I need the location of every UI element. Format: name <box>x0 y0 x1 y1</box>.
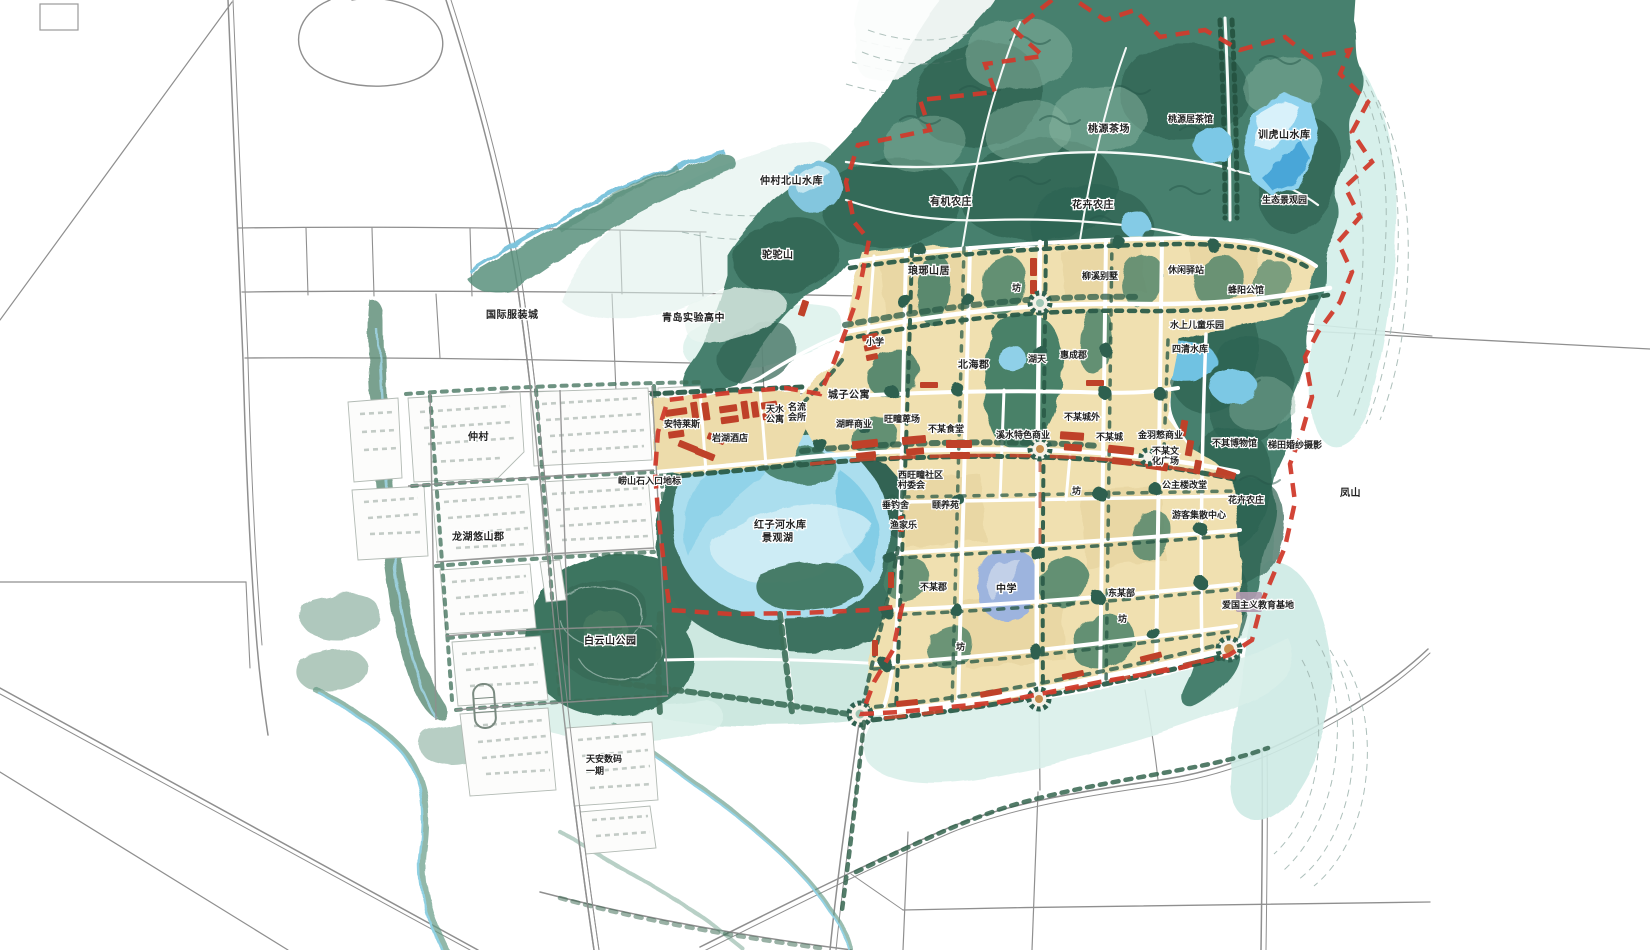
svg-text:不其博物馆: 不其博物馆 <box>1212 437 1257 448</box>
svg-text:青岛实验高中: 青岛实验高中 <box>662 311 725 324</box>
svg-text:公寓: 公寓 <box>766 413 784 424</box>
svg-text:龙湖悠山郡: 龙湖悠山郡 <box>451 530 505 543</box>
svg-text:国际服装城: 国际服装城 <box>486 308 539 321</box>
svg-text:有机农庄: 有机农庄 <box>930 195 972 208</box>
svg-text:柳溪别墅: 柳溪别墅 <box>1082 270 1118 281</box>
svg-text:会所: 会所 <box>788 411 806 422</box>
svg-text:水上儿童乐园: 水上儿童乐园 <box>1170 319 1224 330</box>
svg-text:西旺疃社区: 西旺疃社区 <box>898 469 943 480</box>
svg-text:不某城外: 不某城外 <box>1064 411 1100 422</box>
svg-text:坊: 坊 <box>1012 282 1021 293</box>
svg-text:北海郡: 北海郡 <box>958 358 990 371</box>
svg-text:金羽慗商业: 金羽慗商业 <box>1137 429 1183 440</box>
svg-text:琅琊山居: 琅琊山居 <box>908 264 950 277</box>
svg-text:天安数码: 天安数码 <box>586 753 622 764</box>
svg-text:训虎山水库: 训虎山水库 <box>1258 128 1311 141</box>
svg-text:仲村: 仲村 <box>468 430 489 443</box>
svg-text:岩湖酒店: 岩湖酒店 <box>711 432 748 443</box>
svg-text:桃源茶场: 桃源茶场 <box>1088 122 1130 135</box>
svg-text:游客集散中心: 游客集散中心 <box>1172 509 1226 520</box>
svg-text:红子河水库: 红子河水库 <box>754 518 807 531</box>
svg-text:公主楼改堂: 公主楼改堂 <box>1162 479 1207 490</box>
svg-text:花卉农庄: 花卉农庄 <box>1072 198 1114 211</box>
svg-text:安特莱斯: 安特莱斯 <box>664 418 700 429</box>
svg-text:凤山: 凤山 <box>1340 486 1361 499</box>
svg-text:溪水特色商业: 溪水特色商业 <box>996 429 1050 440</box>
svg-text:花卉农庄: 花卉农庄 <box>1228 494 1264 505</box>
svg-text:惠成郡: 惠成郡 <box>1060 349 1087 360</box>
svg-text:名流: 名流 <box>788 401 806 412</box>
svg-text:坊: 坊 <box>956 641 965 652</box>
svg-text:驼驼山: 驼驼山 <box>762 248 794 261</box>
svg-text:不某食堂: 不某食堂 <box>928 423 964 434</box>
svg-text:颐养苑: 颐养苑 <box>932 499 959 510</box>
svg-text:桃源居茶馆: 桃源居茶馆 <box>1168 113 1213 124</box>
svg-text:不某郡: 不某郡 <box>920 581 947 592</box>
svg-text:生态景观园: 生态景观园 <box>1262 194 1307 205</box>
svg-text:湖天: 湖天 <box>1028 353 1047 364</box>
svg-text:仲村北山水库: 仲村北山水库 <box>760 174 823 187</box>
svg-text:天水: 天水 <box>766 403 785 414</box>
svg-text:旺疃萆场: 旺疃萆场 <box>884 413 920 424</box>
svg-text:不某文: 不某文 <box>1152 445 1180 456</box>
svg-text:白云山公园: 白云山公园 <box>584 634 637 647</box>
svg-text:崂山石入口地标: 崂山石入口地标 <box>618 475 681 486</box>
svg-text:四清水库: 四清水库 <box>1172 343 1208 354</box>
svg-text:化广场: 化广场 <box>1152 455 1179 466</box>
svg-text:蜂阳公馆: 蜂阳公馆 <box>1228 284 1264 295</box>
svg-text:城子公寓: 城子公寓 <box>828 388 870 401</box>
svg-text:一期: 一期 <box>586 765 604 776</box>
svg-text:小学: 小学 <box>865 336 884 347</box>
svg-text:东某部: 东某部 <box>1108 587 1135 598</box>
svg-text:爱国主义教育基地: 爱国主义教育基地 <box>1222 599 1294 610</box>
svg-text:中学: 中学 <box>996 582 1017 595</box>
svg-text:村委会: 村委会 <box>898 479 926 490</box>
svg-text:垂钓舍: 垂钓舍 <box>882 499 910 510</box>
svg-text:不某城: 不某城 <box>1096 431 1123 442</box>
svg-text:坊: 坊 <box>1072 485 1081 496</box>
svg-text:景观湖: 景观湖 <box>762 531 794 544</box>
svg-text:坊: 坊 <box>1118 613 1127 624</box>
svg-text:休闲驿站: 休闲驿站 <box>1167 264 1204 275</box>
svg-text:湖畔商业: 湖畔商业 <box>836 418 872 429</box>
svg-text:渔家乐: 渔家乐 <box>890 519 917 530</box>
svg-text:梯田婚纱摄影: 梯田婚纱摄影 <box>1268 439 1322 450</box>
